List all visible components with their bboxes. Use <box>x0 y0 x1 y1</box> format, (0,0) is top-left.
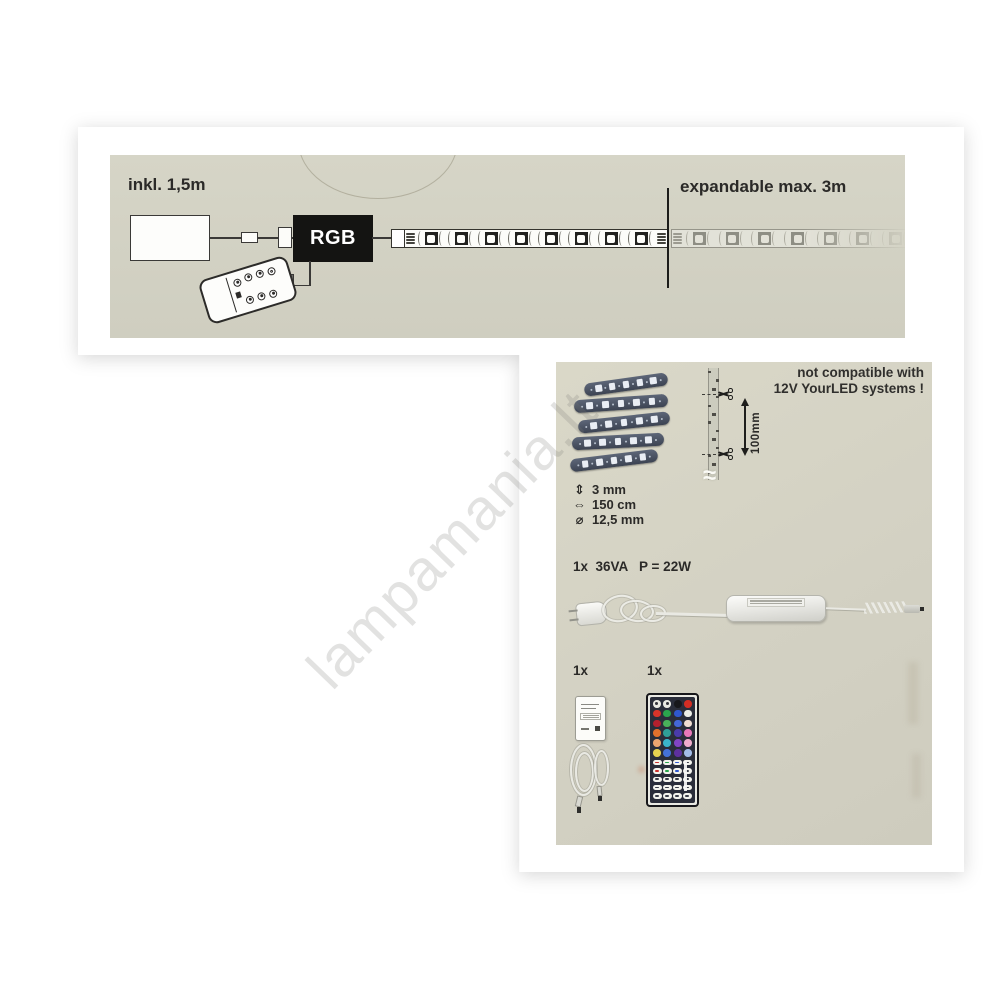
remote-color-button <box>663 700 671 708</box>
photo-smudge <box>638 766 645 773</box>
remote-color-buttons <box>653 700 693 757</box>
coil-strip-row <box>572 433 665 451</box>
solder-pads <box>405 230 416 247</box>
dimension-arrow <box>741 398 749 456</box>
remote-color-button <box>684 700 692 708</box>
led-modules <box>416 230 656 247</box>
led-module <box>536 230 566 247</box>
remote-color-button <box>684 710 692 718</box>
led-strip-solid <box>391 229 668 248</box>
remote-color-button <box>653 739 661 747</box>
led-module <box>596 230 626 247</box>
remote-function-button <box>673 760 682 765</box>
faint-circle-mark <box>298 155 458 199</box>
controller-cable-coil <box>575 752 594 792</box>
remote-color-button <box>653 700 661 708</box>
remote-function-button <box>673 793 682 798</box>
led-module <box>626 230 656 247</box>
led-module <box>879 230 905 247</box>
remote-color-button <box>663 749 671 757</box>
remote-color-button <box>674 710 682 718</box>
solder-pads <box>672 230 683 247</box>
wire <box>294 285 310 287</box>
led-modules <box>683 230 905 247</box>
glare-highlight <box>684 761 687 791</box>
remote-color-button <box>674 749 682 757</box>
remote-color-button <box>653 710 661 718</box>
remote-color-button <box>663 729 671 737</box>
led-module <box>476 230 506 247</box>
remote-color-button <box>674 739 682 747</box>
remote-function-button <box>663 793 672 798</box>
expandable-label: expandable max. 3m <box>680 177 846 197</box>
remote-function-button <box>673 768 682 773</box>
remote-color-button <box>663 720 671 728</box>
dc-connector <box>904 605 920 613</box>
rgb-controller-label: RGB <box>310 227 356 250</box>
remote-color-button <box>653 749 661 757</box>
led-strip-faded <box>671 229 905 248</box>
cut-length-label: 100mm <box>750 402 762 454</box>
cable-connector <box>596 786 602 796</box>
led-module <box>416 230 446 247</box>
remote-qty-label: 1x <box>647 663 662 678</box>
remote-function-button <box>663 777 672 782</box>
coil-strip-row <box>570 449 659 473</box>
remote-color-button <box>674 700 682 708</box>
remote-function-button <box>673 777 682 782</box>
remote-color-button <box>674 720 682 728</box>
remote-function-button <box>653 760 662 765</box>
rgb-controller-box: RGB <box>293 215 373 262</box>
scissors-icon <box>718 388 734 400</box>
spec-width: ⌀ 12,5 mm <box>572 512 644 527</box>
included-length-label: inkl. 1,5m <box>128 175 205 195</box>
remote-color-button <box>663 739 671 747</box>
photo-smudge <box>908 662 918 724</box>
power-supply-box <box>130 215 210 261</box>
height-double-arrow-icon: ⇕ <box>572 482 587 498</box>
led-module <box>566 230 596 247</box>
remote-control-photo <box>646 693 699 807</box>
led-module <box>781 230 814 247</box>
remote-color-button <box>684 729 692 737</box>
remote-function-button <box>653 785 662 790</box>
strip-endcap <box>392 230 405 247</box>
break-symbol: ≈ <box>703 462 716 490</box>
led-module <box>683 230 716 247</box>
remote-function-button <box>663 785 672 790</box>
wire <box>309 261 311 286</box>
led-strip-coil-photo <box>568 376 676 476</box>
remote-function-button <box>653 793 662 798</box>
diameter-icon: ⌀ <box>572 512 587 528</box>
remote-function-button <box>663 760 672 765</box>
solder-pads <box>656 230 667 247</box>
remote-function-button <box>673 785 682 790</box>
remote-color-button <box>684 720 692 728</box>
remote-function-button <box>653 768 662 773</box>
bottom-contents-panel: not compatible with 12V YourLED systems … <box>556 362 932 845</box>
wire <box>372 237 392 239</box>
width-double-arrow-icon: ⇔ <box>572 497 587 512</box>
led-module <box>506 230 536 247</box>
remote-function-button <box>653 777 662 782</box>
twisted-wires <box>864 601 906 613</box>
strip-cut-divider <box>667 188 669 288</box>
led-driver-photo <box>726 595 826 622</box>
spec-length: ⇔ 150 cm <box>572 497 644 512</box>
spec-height: ⇕ 3 mm <box>572 482 644 497</box>
led-module <box>446 230 476 247</box>
controller-qty-label: 1x <box>573 663 588 678</box>
led-module <box>847 230 880 247</box>
photo-smudge <box>912 754 921 798</box>
compatibility-warning: not compatible with 12V YourLED systems … <box>774 365 924 396</box>
cable <box>826 607 866 611</box>
top-diagram-panel: inkl. 1,5m RGB expandable max. 3m <box>110 155 905 338</box>
cable-connector-tip <box>577 807 581 813</box>
strip-specs: ⇕ 3 mm ⇔ 150 cm ⌀ 12,5 mm <box>572 482 644 528</box>
remote-color-button <box>663 710 671 718</box>
led-module <box>716 230 749 247</box>
remote-color-button <box>653 729 661 737</box>
remote-function-button <box>663 768 672 773</box>
coil-strip-row <box>584 372 669 397</box>
controller-cable-coil <box>594 750 609 786</box>
inline-connector <box>241 232 258 243</box>
remote-color-button <box>684 749 692 757</box>
remote-function-button <box>683 793 692 798</box>
cable <box>656 612 730 617</box>
plug-connector <box>278 227 292 248</box>
coil-strip-row <box>578 411 671 434</box>
remote-color-button <box>674 729 682 737</box>
cable-connector <box>575 795 583 807</box>
remote-color-button <box>684 739 692 747</box>
remote-color-button <box>653 720 661 728</box>
power-supply-spec-label: 1x 36VA P = 22W <box>573 559 691 574</box>
coil-strip-row <box>574 394 669 414</box>
controller-box-photo <box>575 696 606 741</box>
remote-control-diagram <box>197 255 298 326</box>
scissors-icon <box>718 448 734 460</box>
led-module <box>814 230 847 247</box>
led-module <box>748 230 781 247</box>
dc-connector-tip <box>920 607 924 611</box>
cable-connector-tip <box>598 796 602 801</box>
